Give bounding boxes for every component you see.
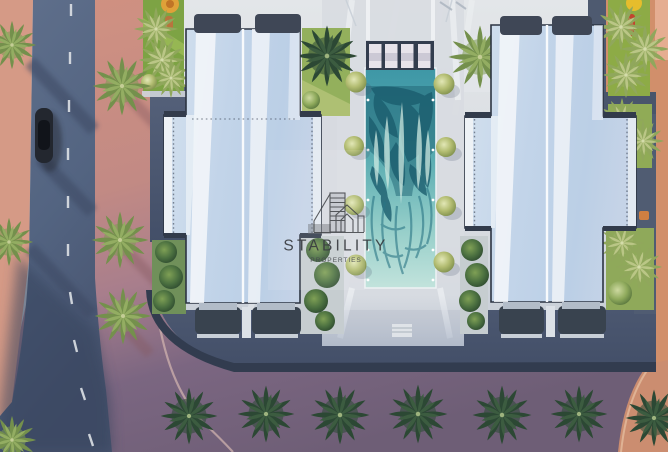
svg-text:STABILITY: STABILITY	[283, 238, 388, 255]
svg-text:PROPERTIES: PROPERTIES	[310, 257, 361, 264]
